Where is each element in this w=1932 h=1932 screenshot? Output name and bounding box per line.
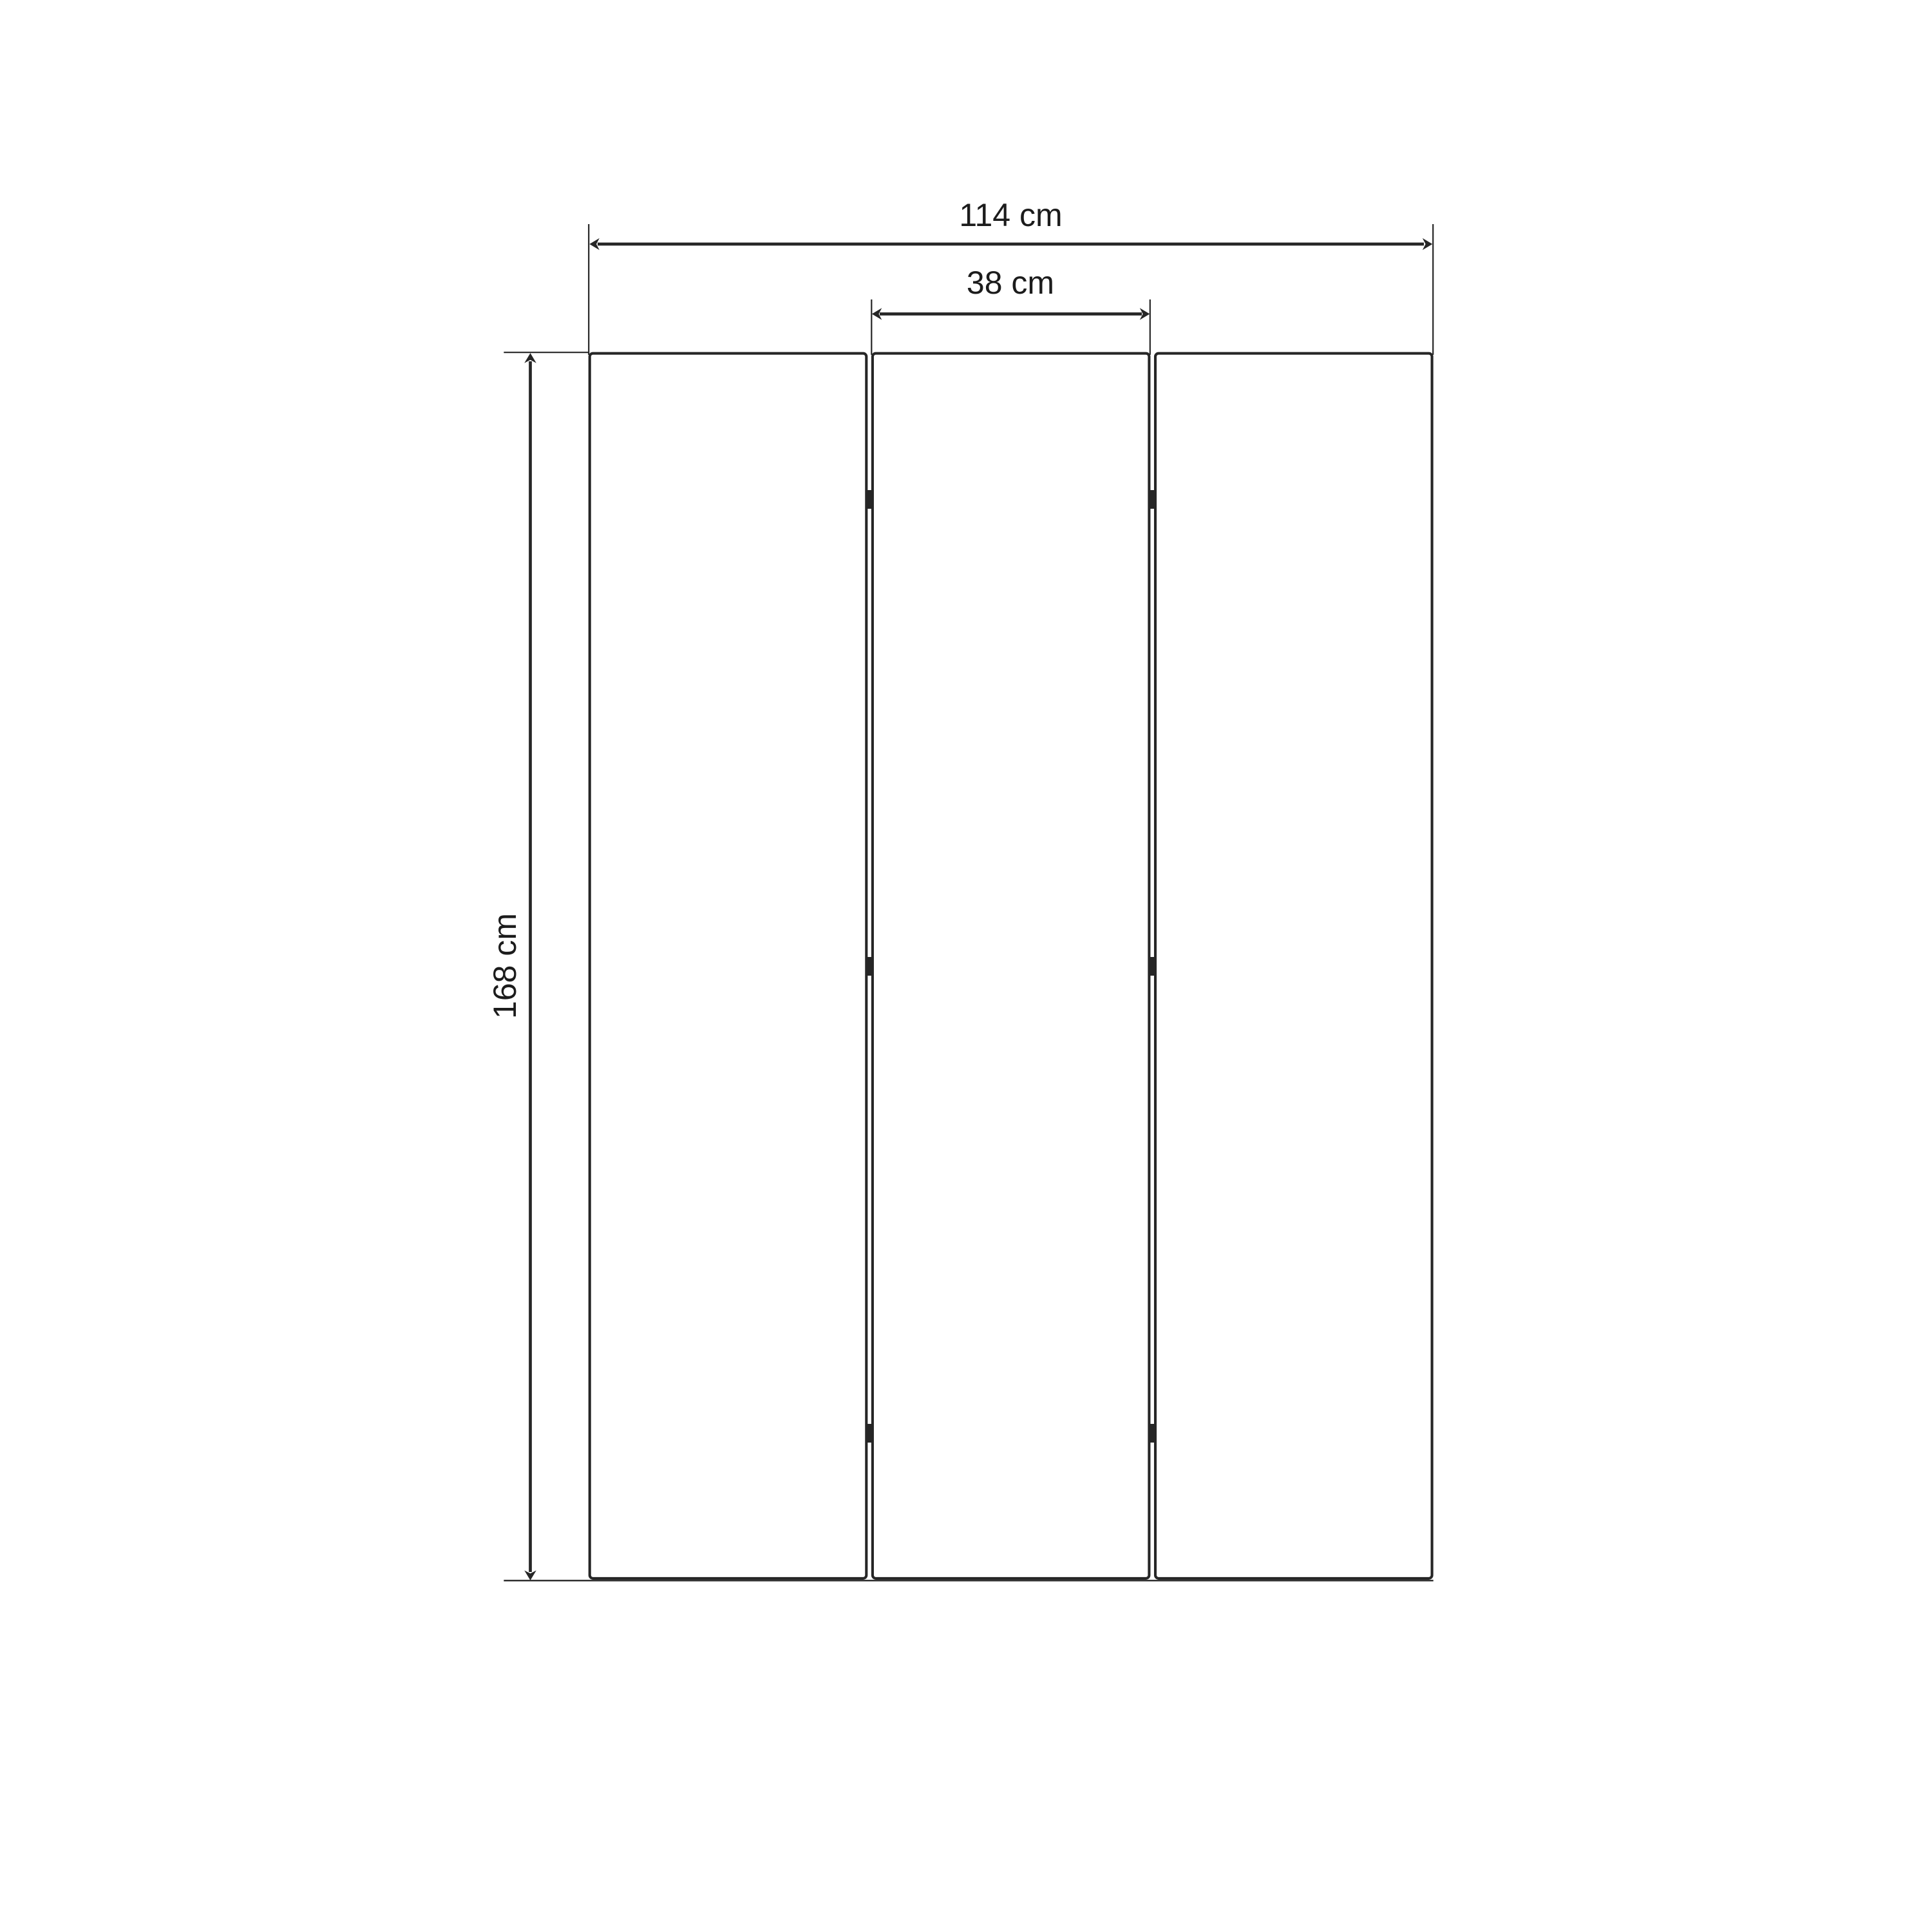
svg-text:168 cm: 168 cm (487, 913, 523, 1019)
svg-text:38 cm: 38 cm (967, 265, 1054, 301)
svg-text:114 cm: 114 cm (959, 197, 1062, 233)
